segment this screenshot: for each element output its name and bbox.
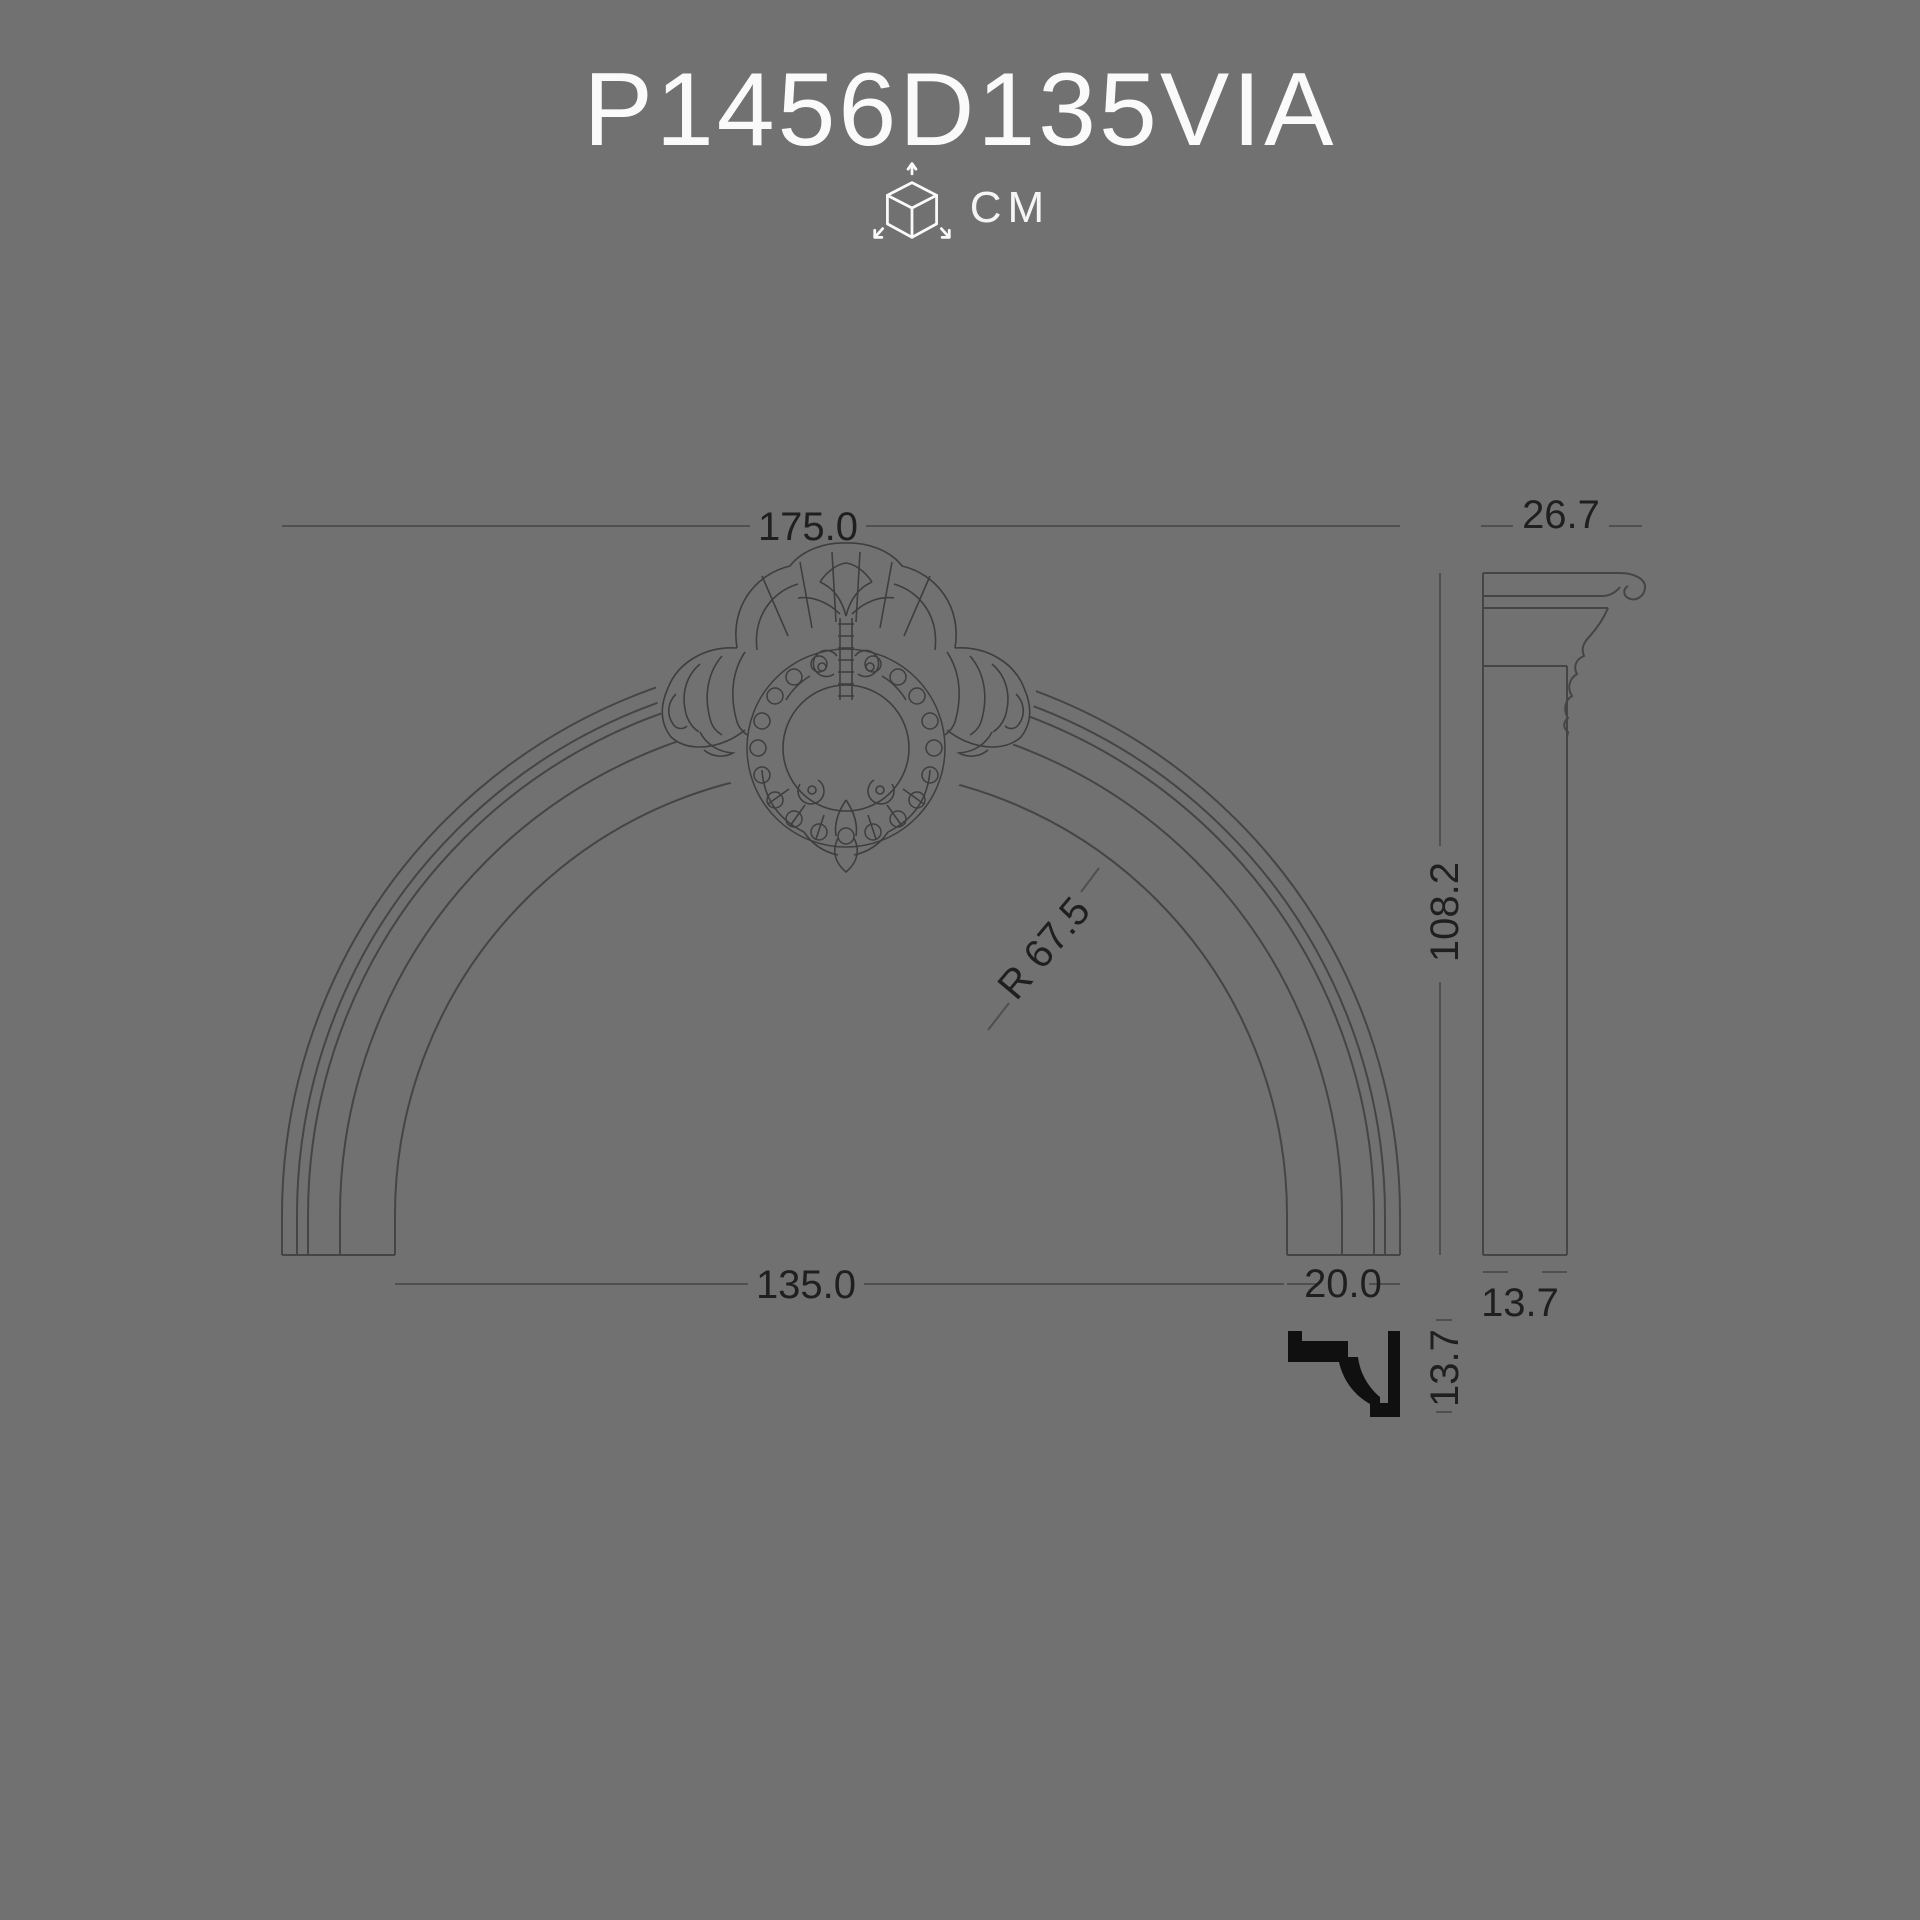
dim-radius: R 67.5 bbox=[990, 889, 1099, 1008]
dim-band-width: 20.0 bbox=[1304, 1262, 1382, 1306]
side-view-profile bbox=[1483, 573, 1645, 1255]
dim-depth: 26.7 bbox=[1522, 493, 1600, 537]
section-profile-glyph bbox=[1288, 1331, 1400, 1417]
dim-section-height: 13.7 bbox=[1423, 1329, 1467, 1407]
dim-inner-width: 135.0 bbox=[756, 1263, 856, 1307]
drawing-canvas: P1456D135VIA CM bbox=[0, 0, 1920, 1920]
dim-overall-width: 175.0 bbox=[758, 505, 858, 549]
technical-drawing: 175.0 26.7 108.2 R 67.5 135.0 20.0 13.7 … bbox=[0, 0, 1920, 1920]
dim-bottom-depth: 13.7 bbox=[1481, 1281, 1559, 1325]
dim-height: 108.2 bbox=[1423, 862, 1467, 962]
